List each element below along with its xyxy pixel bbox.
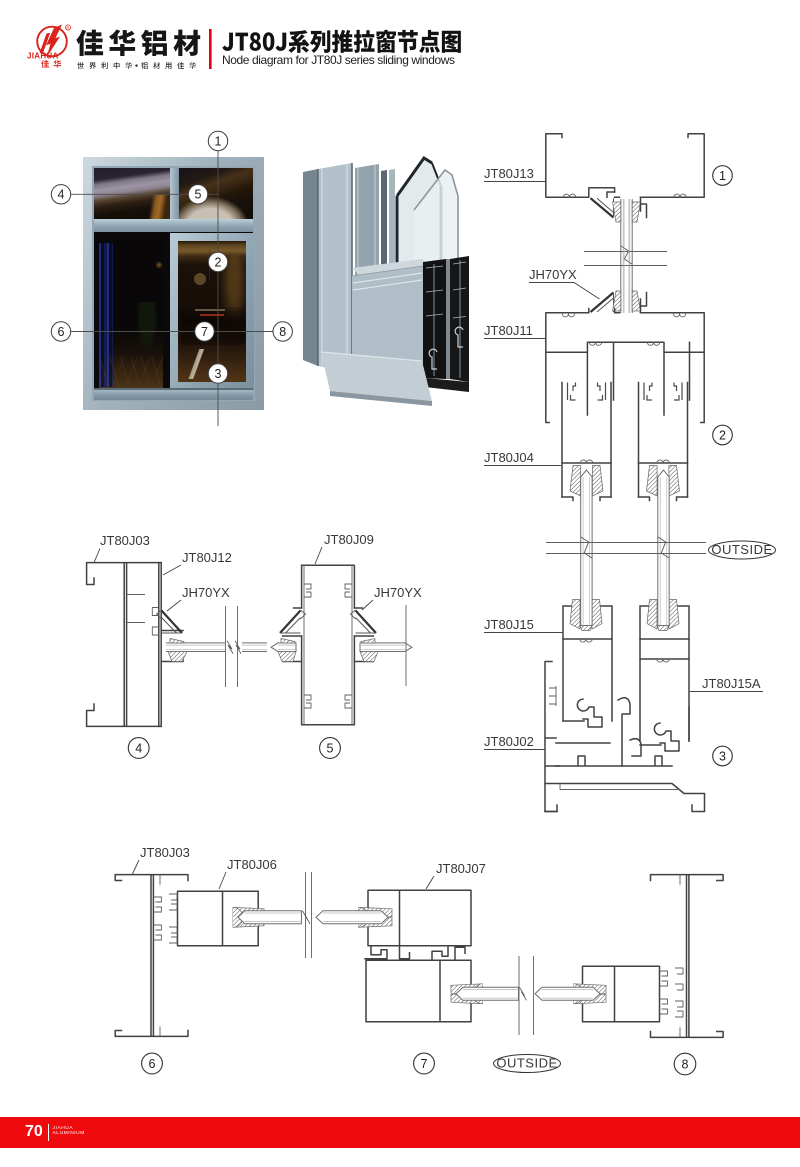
svg-text:JT80J04: JT80J04 (484, 450, 534, 465)
svg-text:4: 4 (58, 188, 65, 202)
svg-text:JT80J15A: JT80J15A (702, 676, 761, 691)
svg-text:8: 8 (682, 1057, 689, 1071)
svg-text:4: 4 (135, 741, 142, 755)
svg-text:JH70YX: JH70YX (374, 585, 422, 600)
svg-text:2: 2 (215, 255, 222, 269)
svg-text:JT80J07: JT80J07 (436, 861, 486, 876)
svg-text:5: 5 (327, 741, 334, 755)
svg-text:3: 3 (215, 367, 222, 381)
svg-text:JH70YX: JH70YX (182, 585, 230, 600)
svg-text:JT80J06: JT80J06 (227, 857, 277, 872)
svg-text:JT80J09: JT80J09 (324, 532, 374, 547)
svg-text:JT80J03: JT80J03 (100, 533, 150, 548)
svg-text:JT80J02: JT80J02 (484, 734, 534, 749)
svg-text:OUTSIDE: OUTSIDE (496, 1056, 557, 1071)
svg-text:OUTSIDE: OUTSIDE (711, 542, 772, 557)
svg-text:JIAHUA: JIAHUA (27, 52, 59, 61)
svg-text:5: 5 (195, 188, 202, 202)
svg-text:JT80J11: JT80J11 (484, 323, 533, 338)
svg-text:7: 7 (201, 325, 208, 339)
svg-text:6: 6 (58, 325, 65, 339)
svg-text:1: 1 (215, 134, 222, 148)
svg-text:Node diagram for JT80J series: Node diagram for JT80J series sliding wi… (222, 53, 455, 67)
svg-text:JT80J13: JT80J13 (484, 166, 534, 181)
svg-text:2: 2 (719, 428, 726, 442)
svg-text:R: R (66, 26, 69, 31)
svg-text:3: 3 (719, 749, 726, 763)
svg-text:8: 8 (279, 325, 286, 339)
svg-text:6: 6 (149, 1057, 156, 1071)
svg-text:JT80J15: JT80J15 (484, 617, 534, 632)
svg-text:JT80J03: JT80J03 (140, 845, 190, 860)
svg-text:JT80J12: JT80J12 (182, 550, 232, 565)
svg-text:JH70YX: JH70YX (529, 267, 577, 282)
svg-text:1: 1 (719, 169, 726, 183)
svg-text:7: 7 (421, 1057, 428, 1071)
